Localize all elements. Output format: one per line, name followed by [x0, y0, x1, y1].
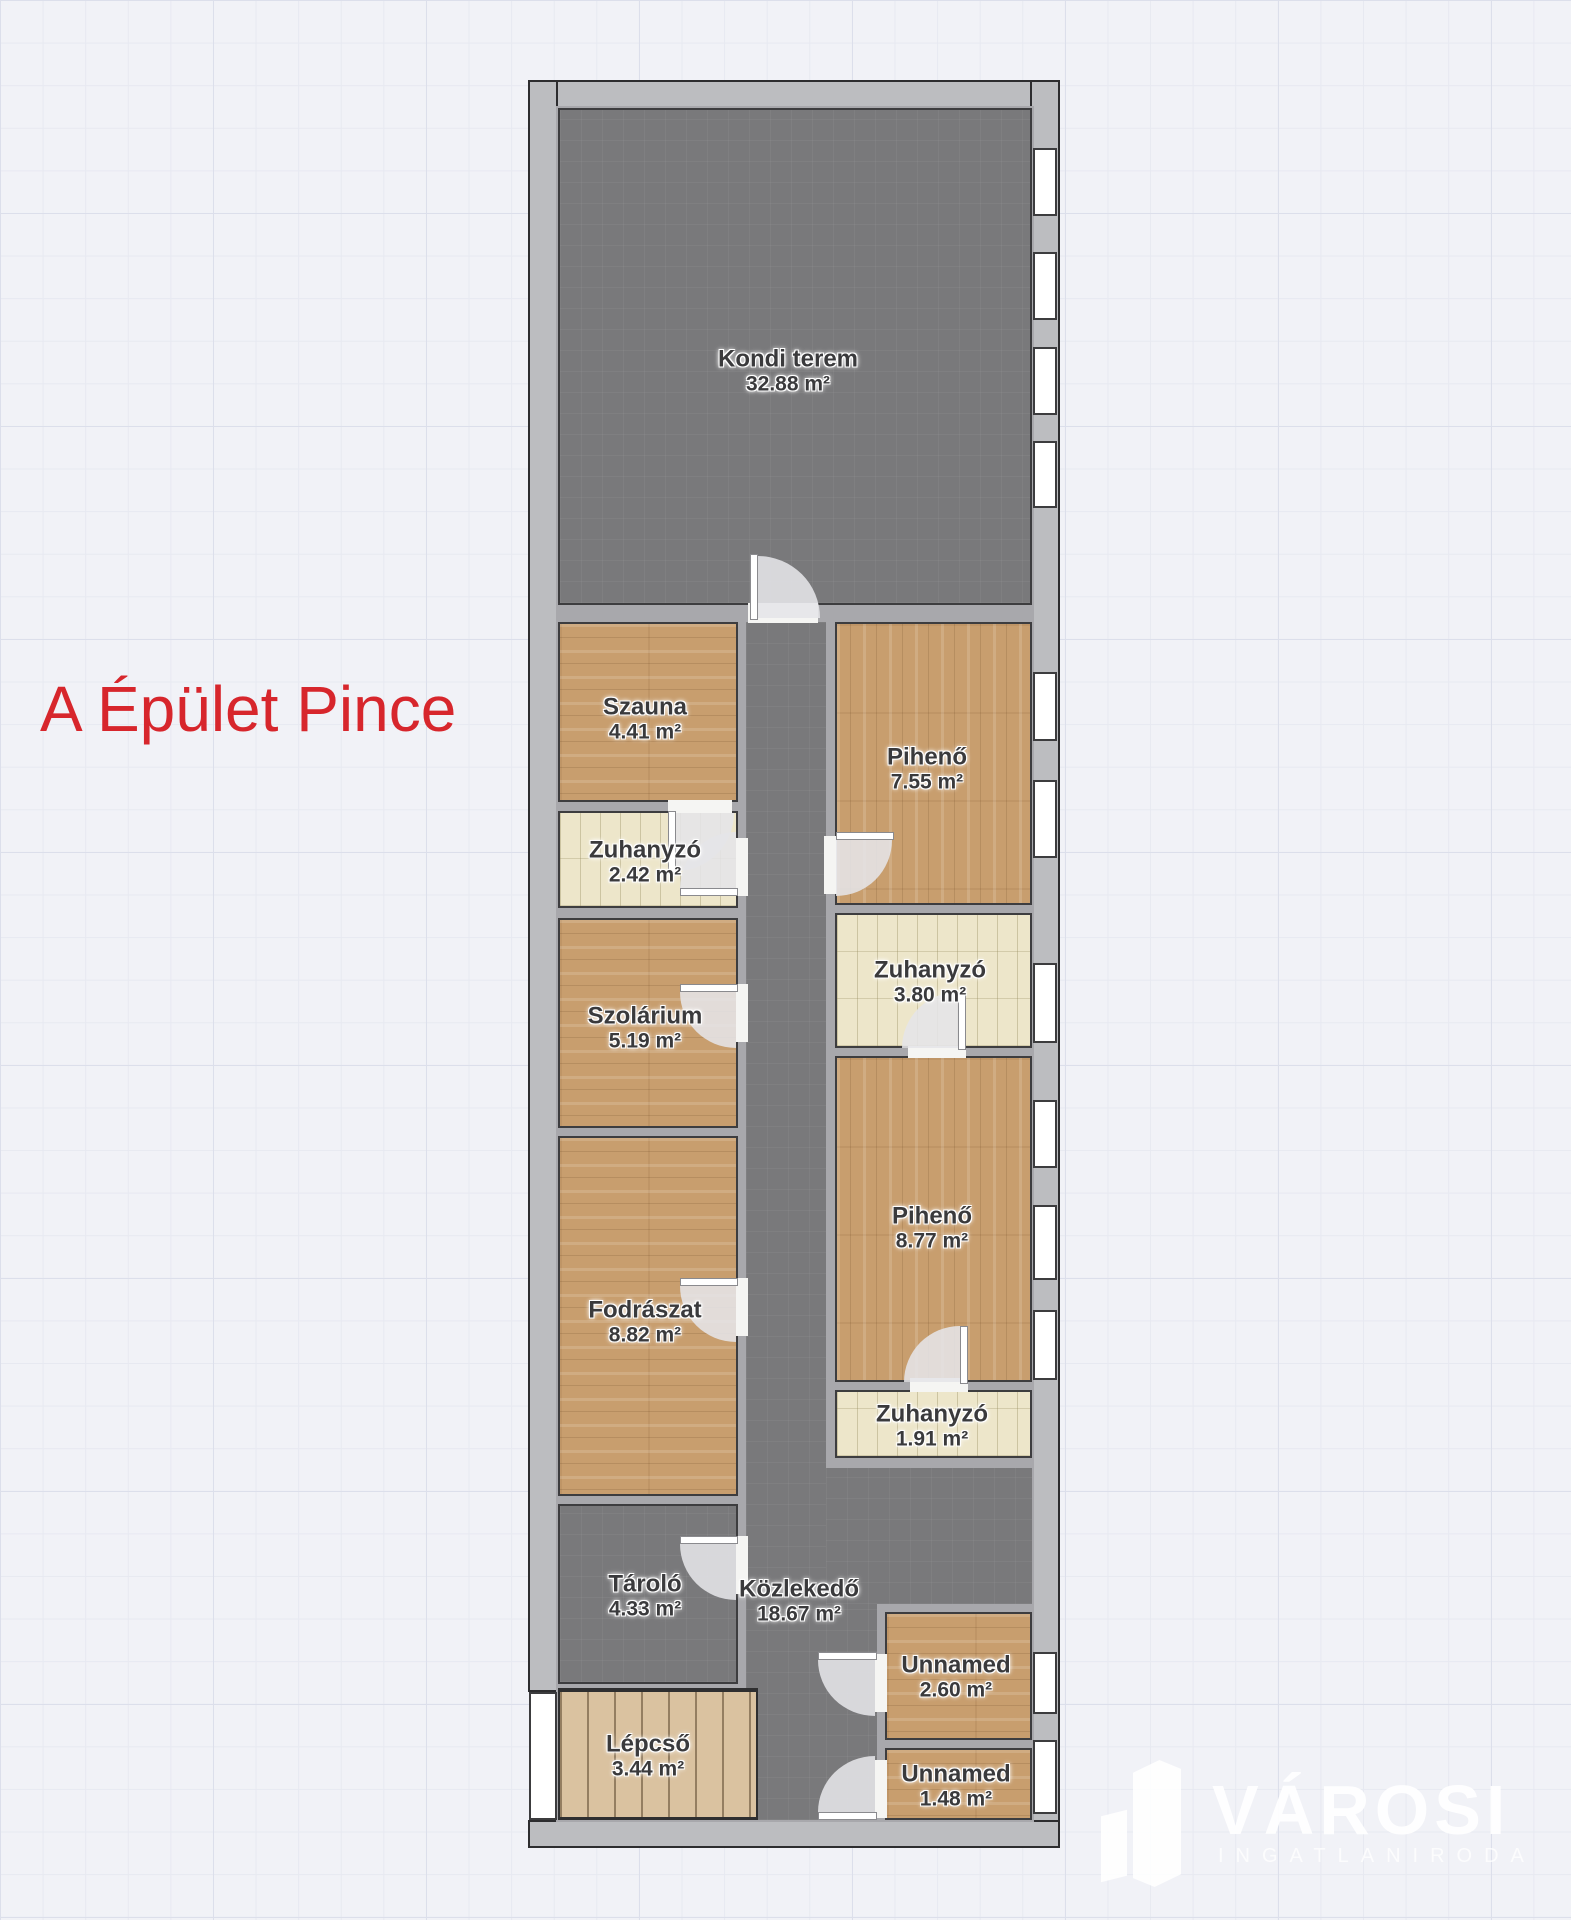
window-1 [1033, 148, 1057, 216]
door-gap-unnamed148 [875, 1760, 887, 1818]
window-9 [1033, 1205, 1057, 1280]
room-name: Zuhanyzó [874, 957, 986, 984]
outer-wall-top [528, 80, 1060, 108]
room-name: Közlekedő [739, 1576, 859, 1603]
door-leaf-unnamed148 [818, 1812, 877, 1820]
room-area: 1.91 m² [876, 1428, 988, 1452]
label-unnamed-148: Unnamed 1.48 m² [901, 1761, 1010, 1812]
varosi-logo-icon [1133, 1760, 1181, 1887]
room-name: Unnamed [901, 1761, 1010, 1788]
label-kondi-terem: Kondi terem 32.88 m² [718, 346, 858, 397]
outer-wall-left [528, 80, 558, 1692]
outer-wall-bottom [528, 1820, 1060, 1848]
room-area: 3.44 m² [606, 1758, 690, 1782]
room-name: Pihenő [887, 744, 967, 771]
room-area: 1.48 m² [901, 1788, 1010, 1812]
label-szolarium: Szolárium 5.19 m² [588, 1003, 703, 1054]
window-12 [1033, 1740, 1057, 1814]
door-leaf-tarolo [680, 1536, 738, 1544]
label-unnamed-260: Unnamed 2.60 m² [901, 1652, 1010, 1703]
label-zuhanyzo-380: Zuhanyzó 3.80 m² [874, 957, 986, 1008]
window-6 [1033, 780, 1057, 858]
stair-opening [529, 1692, 557, 1820]
door-gap-szolarium [736, 984, 748, 1042]
door-leaf-fodraszat [680, 1278, 738, 1286]
window-2 [1033, 252, 1057, 320]
room-area: 32.88 m² [718, 373, 858, 397]
plan-title: A Épület Pince [40, 672, 456, 746]
room-name: Szolárium [588, 1003, 703, 1030]
room-name: Pihenő [892, 1203, 972, 1230]
room-name: Lépcső [606, 1731, 690, 1758]
room-area: 3.80 m² [874, 984, 986, 1008]
room-area: 4.41 m² [603, 721, 687, 745]
room-area: 2.42 m² [589, 864, 701, 888]
room-name: Zuhanyzó [876, 1401, 988, 1428]
room-name: Fodrászat [588, 1297, 701, 1324]
label-szauna: Szauna 4.41 m² [603, 694, 687, 745]
window-8 [1033, 1100, 1057, 1168]
label-piheno-877: Pihenő 8.77 m² [892, 1203, 972, 1254]
door-leaf-piheno755 [836, 832, 894, 840]
label-piheno-755: Pihenő 7.55 m² [887, 744, 967, 795]
door-leaf-zuhanyzo191 [960, 1326, 968, 1384]
label-lepcso: Lépcső 3.44 m² [606, 1731, 690, 1782]
door-leaf-zuhanyzo242 [680, 888, 738, 896]
door-leaf-unnamed260 [818, 1652, 877, 1660]
door-gap-szauna [668, 800, 732, 813]
room-area: 7.55 m² [887, 771, 967, 795]
room-name: Szauna [603, 694, 687, 721]
label-kozlekedo: Közlekedő 18.67 m² [739, 1576, 859, 1627]
watermark-subtitle: INGATLANIRODA [1218, 1845, 1536, 1868]
room-area: 8.82 m² [588, 1324, 701, 1348]
room-name: Unnamed [901, 1652, 1010, 1679]
varosi-logo-icon [1101, 1810, 1127, 1882]
label-zuhanyzo-191: Zuhanyzó 1.91 m² [876, 1401, 988, 1452]
watermark-brand: VÁROSI [1212, 1770, 1510, 1850]
room-name: Tároló [608, 1571, 681, 1598]
window-10 [1033, 1310, 1057, 1380]
room-area: 5.19 m² [588, 1030, 703, 1054]
room-kozlekedo-vertical [746, 622, 826, 1820]
door-gap-fodraszat [736, 1278, 748, 1336]
door-gap-unnamed260 [875, 1654, 887, 1712]
floorplan-canvas: A Épület Pince [0, 0, 1571, 1920]
label-tarolo: Tároló 4.33 m² [608, 1571, 681, 1622]
window-3 [1033, 347, 1057, 415]
window-11 [1033, 1652, 1057, 1714]
room-name: Zuhanyzó [589, 837, 701, 864]
window-5 [1033, 672, 1057, 741]
room-name: Kondi terem [718, 346, 858, 373]
label-zuhanyzo-242: Zuhanyzó 2.42 m² [589, 837, 701, 888]
room-area: 8.77 m² [892, 1230, 972, 1254]
label-fodraszat: Fodrászat 8.82 m² [588, 1297, 701, 1348]
door-leaf-kondi [750, 554, 758, 620]
window-7 [1033, 963, 1057, 1043]
room-area: 4.33 m² [608, 1598, 681, 1622]
room-area: 18.67 m² [739, 1603, 859, 1627]
door-leaf-szolarium [680, 984, 738, 992]
room-area: 2.60 m² [901, 1679, 1010, 1703]
window-4 [1033, 441, 1057, 508]
